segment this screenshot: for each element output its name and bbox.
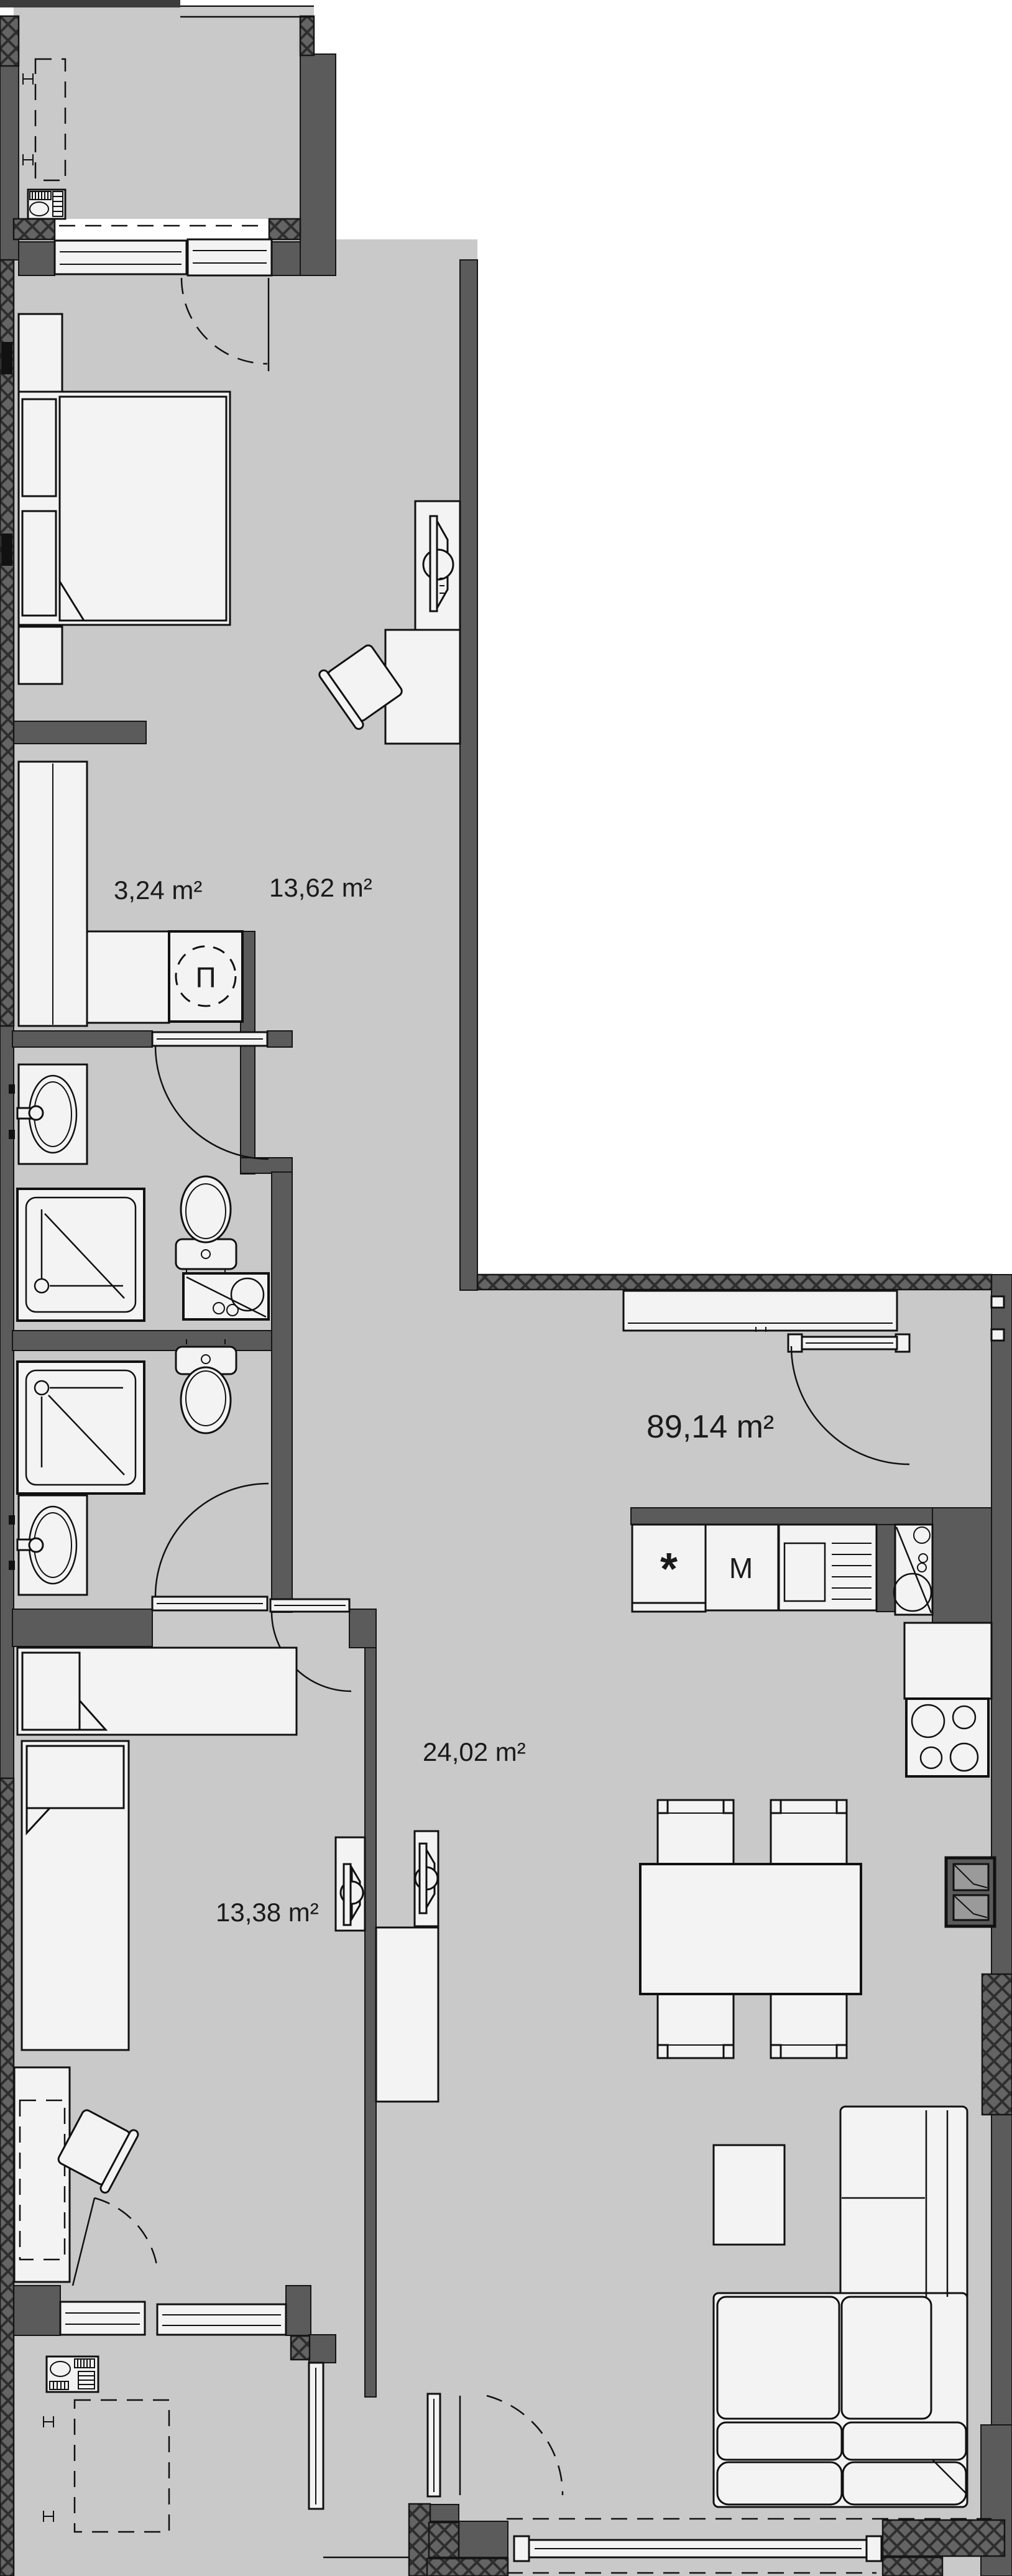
wall bbox=[272, 242, 300, 275]
vanity bbox=[183, 1273, 269, 1319]
wall bbox=[876, 1525, 895, 1612]
window bbox=[157, 2304, 286, 2335]
total-area-label: 89,14 m² bbox=[646, 1409, 774, 1445]
pillow bbox=[22, 399, 56, 496]
wall-pier bbox=[300, 54, 336, 275]
wall-corridor-east bbox=[460, 260, 477, 1290]
washing-machine: П bbox=[169, 931, 242, 1022]
dining-chair bbox=[658, 1800, 734, 1864]
hatched-wall bbox=[982, 1974, 1012, 2115]
wall-bedroom2-living bbox=[365, 1648, 376, 2397]
dining-chair bbox=[658, 1994, 734, 2058]
corner-sink bbox=[894, 1525, 932, 1615]
dining-table bbox=[640, 1864, 861, 1994]
window bbox=[60, 2302, 145, 2335]
hatched-wall bbox=[300, 16, 314, 55]
room-label-laundry: 3,24 m² bbox=[114, 875, 202, 905]
window-frame bbox=[514, 2536, 529, 2561]
door-frame bbox=[991, 1296, 1004, 1308]
sink bbox=[9, 1495, 87, 1595]
wall-partition bbox=[12, 721, 146, 744]
pillow bbox=[27, 1746, 124, 1808]
ac-unit-icon bbox=[47, 2357, 98, 2392]
oven-symbol: M bbox=[729, 1552, 753, 1584]
door-frame bbox=[991, 1329, 1004, 1341]
wall bbox=[267, 1031, 292, 1047]
nightstand bbox=[19, 627, 62, 684]
hatched-wall bbox=[291, 2336, 310, 2360]
dining-chair bbox=[771, 1994, 847, 2058]
wall bbox=[241, 1158, 292, 1173]
wall bbox=[459, 2521, 508, 2557]
stove bbox=[906, 1699, 988, 1776]
wall bbox=[932, 1508, 991, 1623]
room-label-bedroom2: 13,38 m² bbox=[216, 1898, 319, 1927]
shower bbox=[17, 1362, 144, 1493]
coffee-table bbox=[714, 2145, 784, 2245]
hatched-wall-living-top bbox=[477, 1275, 991, 1290]
wall bbox=[19, 242, 55, 275]
nightstand bbox=[19, 314, 62, 392]
window bbox=[55, 241, 186, 274]
wall bbox=[12, 2286, 60, 2335]
floorplan-canvas: П bbox=[0, 0, 1012, 2576]
wall bbox=[0, 0, 180, 7]
window-frame bbox=[867, 2536, 881, 2561]
wall bbox=[12, 1031, 152, 1047]
shower bbox=[17, 1189, 144, 1321]
hatched-wall bbox=[269, 219, 300, 239]
tv-icon bbox=[430, 516, 437, 611]
room-label-living: 24,02 m² bbox=[423, 1737, 526, 1766]
wall bbox=[12, 1609, 152, 1646]
washer-symbol: П bbox=[195, 961, 216, 994]
balcony-top-floor bbox=[14, 7, 314, 219]
tv-unit bbox=[415, 501, 460, 630]
entry-wardrobe bbox=[623, 1291, 897, 1331]
tv-icon bbox=[420, 1844, 426, 1913]
wall-corridor-west bbox=[272, 1172, 292, 1612]
radiator-tick bbox=[1, 533, 12, 566]
ac-unit-icon bbox=[28, 190, 65, 219]
toilet bbox=[176, 1176, 236, 1275]
hatched-wall bbox=[427, 2559, 508, 2576]
hatched-wall bbox=[883, 2557, 942, 2576]
mattress bbox=[60, 397, 226, 621]
hatched-wall-left bbox=[0, 260, 14, 1026]
fridge-symbol: * bbox=[660, 1544, 678, 1594]
pillow bbox=[22, 511, 56, 616]
wall bbox=[349, 1609, 376, 1648]
tv-icon bbox=[344, 1864, 351, 1925]
door-frame bbox=[788, 1334, 802, 1352]
sink-cabinet bbox=[779, 1525, 876, 1610]
wall bbox=[429, 2504, 459, 2521]
radiator-tick bbox=[1, 342, 12, 374]
counter bbox=[87, 931, 169, 1023]
balcony-door[interactable] bbox=[188, 239, 272, 275]
hatched-wall-left bbox=[0, 1778, 14, 2576]
vent-shaft-icon bbox=[946, 1858, 995, 1926]
sink bbox=[9, 1064, 87, 1164]
toilet bbox=[176, 1339, 236, 1433]
sideboard bbox=[376, 1927, 438, 2102]
counter bbox=[904, 1623, 991, 1699]
room-label-bedroom1: 13,62 m² bbox=[269, 873, 372, 902]
wall bbox=[309, 2335, 336, 2363]
tv-unit bbox=[336, 1837, 365, 1931]
pillow bbox=[22, 1653, 80, 1730]
dining-chair bbox=[771, 1800, 847, 1864]
hatched-wall bbox=[429, 2523, 459, 2557]
wall bbox=[286, 2286, 311, 2335]
hatched-wall bbox=[0, 16, 19, 66]
hatched-wall bbox=[883, 2520, 1005, 2556]
hatched-wall bbox=[14, 219, 55, 239]
